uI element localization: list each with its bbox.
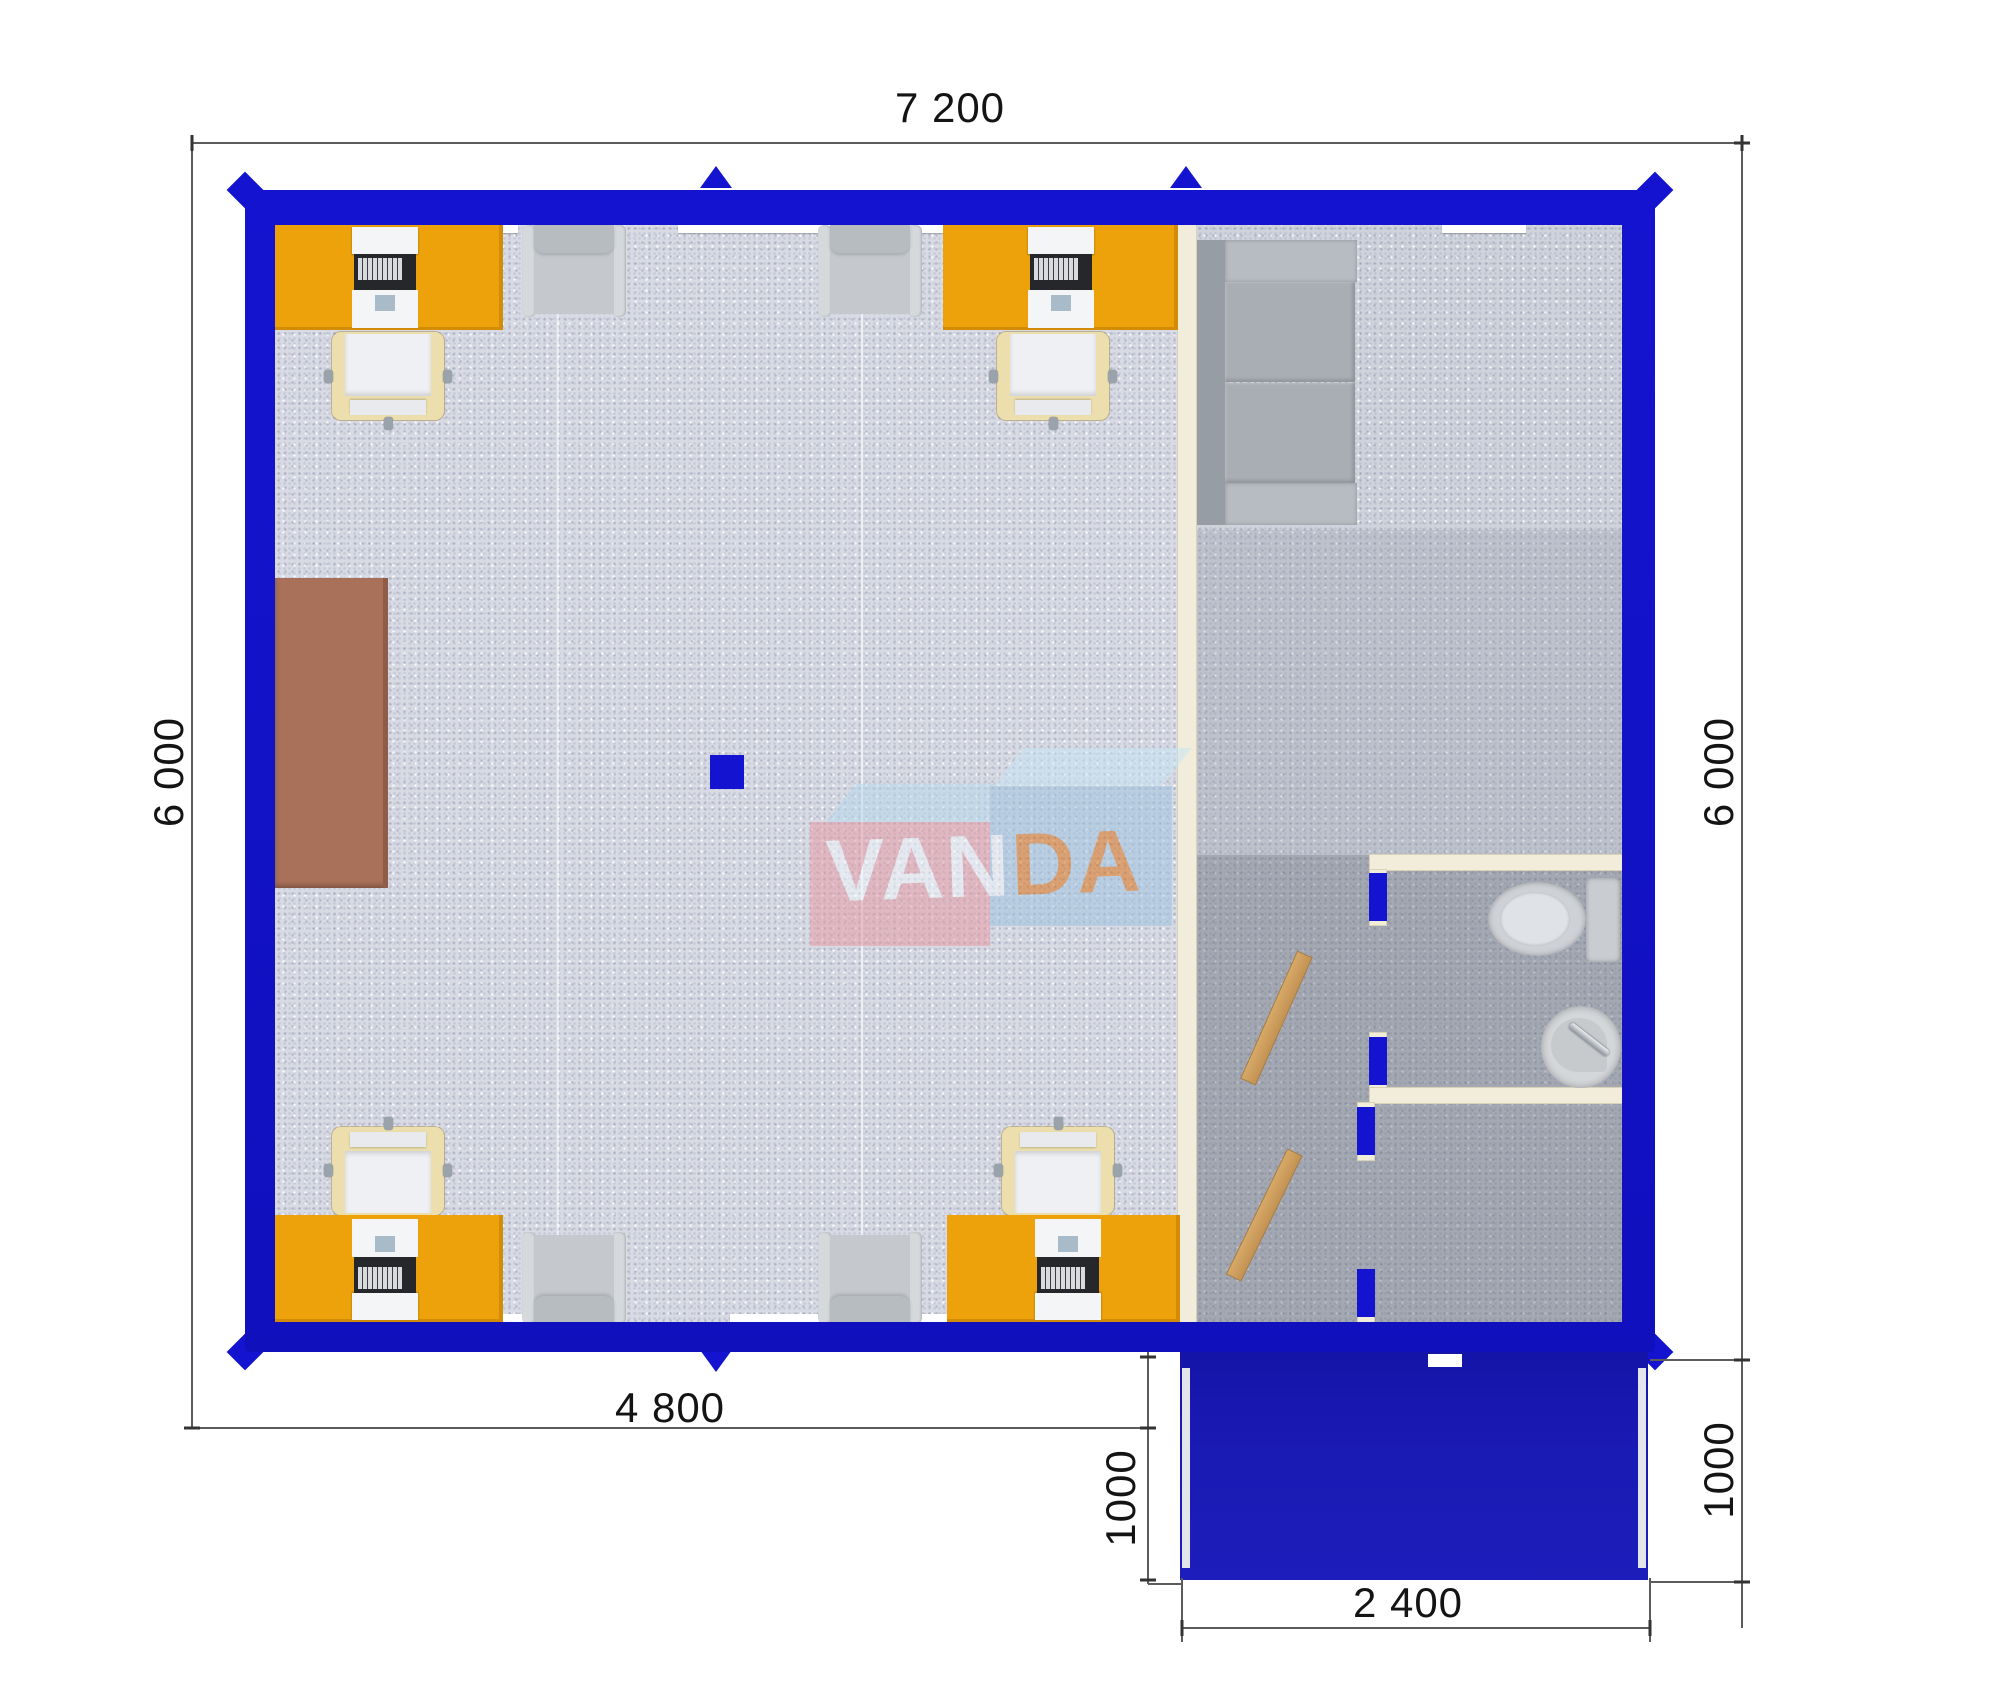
caster-wheel — [384, 1117, 393, 1130]
caster-wheel — [994, 1164, 1003, 1177]
office-chair — [332, 1127, 444, 1215]
chair-seat — [1010, 334, 1096, 396]
entrance-door-mark — [1428, 1354, 1462, 1367]
floor-seam — [557, 225, 559, 1322]
laptop-palmrest — [352, 1219, 418, 1257]
chair-backrest — [350, 400, 426, 415]
toilet-seat — [1500, 892, 1570, 946]
bathroom-wall-top — [1370, 855, 1622, 870]
sofa-seat-cushion — [1225, 383, 1355, 483]
column-marker — [710, 755, 744, 789]
dim-porch-right-depth: 1000 — [1696, 1390, 1740, 1550]
module-joint-marker-top-2 — [1170, 166, 1202, 188]
caster-wheel — [1108, 370, 1117, 383]
dim-bottom-left-width: 4 800 — [590, 1385, 750, 1431]
door-jamb — [1357, 1269, 1375, 1317]
caster-wheel — [989, 370, 998, 383]
chair-backrest — [1015, 400, 1091, 415]
logo-text-da: DA — [1010, 811, 1144, 915]
sofa — [1197, 240, 1357, 525]
laptop-keyboard — [354, 254, 416, 290]
office-chair — [997, 332, 1109, 420]
chair-backrest — [350, 1132, 426, 1147]
module-joint-marker-bottom — [700, 1350, 732, 1372]
armchair-backrest — [534, 1296, 614, 1322]
laptop — [352, 227, 418, 328]
dim-porch-left-depth: 1000 — [1098, 1418, 1142, 1578]
laptop-keys — [358, 1267, 402, 1289]
armchair-backrest — [830, 225, 910, 253]
laptop-keys — [1034, 258, 1078, 280]
laptop-lid — [1035, 1293, 1101, 1320]
laptop-touchpad — [1051, 295, 1071, 311]
armchair-armrest — [612, 225, 626, 317]
caster-wheel — [443, 1164, 452, 1177]
cabinet — [275, 578, 388, 888]
window-top-4 — [1442, 225, 1526, 233]
armchair-armrest — [908, 1232, 922, 1322]
laptop-keyboard — [1030, 254, 1092, 290]
caster-wheel — [384, 417, 393, 430]
sink — [1541, 1006, 1621, 1088]
chair-seat — [345, 1151, 431, 1213]
laptop-touchpad — [1058, 1236, 1078, 1252]
laptop-lid — [352, 1293, 418, 1320]
laptop-palmrest — [1028, 290, 1094, 328]
vanda-watermark-logo: VANDA — [800, 722, 1185, 930]
door-jamb — [1369, 1037, 1387, 1085]
laptop-touchpad — [375, 295, 395, 311]
caster-wheel — [1113, 1164, 1122, 1177]
entrance-porch — [1180, 1352, 1648, 1580]
logo-box-top-face — [992, 748, 1191, 788]
toilet-tank — [1586, 878, 1620, 962]
laptop-palmrest — [1035, 1219, 1101, 1257]
armchair — [522, 1232, 626, 1322]
laptop-lid — [1028, 227, 1094, 254]
sofa-armrest — [1225, 240, 1357, 282]
armchair-armrest — [612, 1232, 626, 1322]
door-jamb — [1369, 873, 1387, 921]
bathroom-wall-bottom — [1370, 1088, 1622, 1103]
chair-seat — [345, 334, 431, 396]
laptop-keys — [358, 258, 402, 280]
logo-text-van: VAN — [824, 815, 1013, 920]
chair-backrest — [1020, 1132, 1096, 1147]
laptop-keyboard — [1037, 1257, 1099, 1293]
toilet — [1488, 882, 1586, 956]
caster-wheel — [1049, 417, 1058, 430]
office-chair — [332, 332, 444, 420]
logo-wordmark: VANDA — [825, 817, 1144, 916]
laptop — [1035, 1219, 1101, 1320]
sofa-armrest — [1225, 483, 1357, 525]
caster-wheel — [1054, 1117, 1063, 1130]
floor-plan-canvas: 7 200 6 000 6 000 4 800 1000 1000 2 400 — [0, 0, 2000, 1682]
chair-seat — [1015, 1151, 1101, 1213]
module-joint-marker-top-1 — [700, 166, 732, 188]
dim-porch-width: 2 400 — [1328, 1580, 1488, 1626]
laptop — [1028, 227, 1094, 328]
caster-wheel — [324, 1164, 333, 1177]
sofa-backrest — [1197, 240, 1225, 525]
laptop-keys — [1041, 1267, 1085, 1289]
armchair-backrest — [830, 1296, 910, 1322]
laptop-palmrest — [352, 290, 418, 328]
dim-right-height: 6 000 — [1696, 692, 1740, 852]
dim-top-width: 7 200 — [870, 85, 1030, 131]
porch-side-strip-left — [1182, 1368, 1190, 1568]
armchair-backrest — [534, 225, 614, 253]
sofa-seat-cushion — [1225, 282, 1355, 382]
laptop-touchpad — [375, 1236, 395, 1252]
laptop — [352, 1219, 418, 1320]
caster-wheel — [443, 370, 452, 383]
armchair — [818, 1232, 922, 1322]
door-jamb — [1357, 1107, 1375, 1155]
porch-side-strip-right — [1638, 1368, 1646, 1568]
dim-left-height: 6 000 — [146, 692, 190, 852]
armchair — [522, 225, 626, 317]
hall-floor-shade — [1196, 530, 1622, 855]
armchair-armrest — [908, 225, 922, 317]
laptop-lid — [352, 227, 418, 254]
office-chair — [1002, 1127, 1114, 1215]
caster-wheel — [324, 370, 333, 383]
laptop-keyboard — [354, 1257, 416, 1293]
armchair — [818, 225, 922, 317]
